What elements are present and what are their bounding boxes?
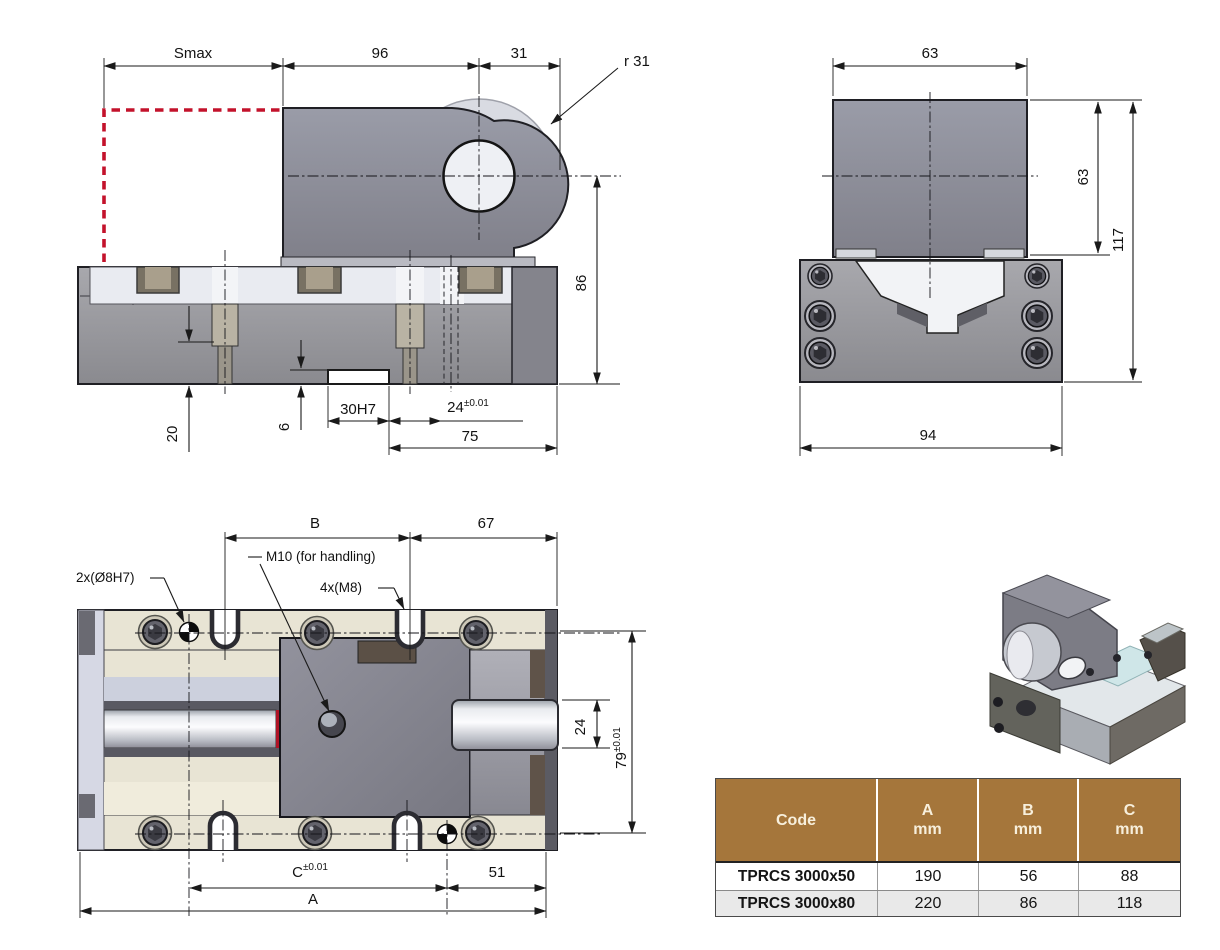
- jaw-plate-strip: [281, 257, 535, 267]
- base-right-block: [512, 267, 557, 384]
- edge-tab: [79, 794, 95, 818]
- dim-r31: r 31: [624, 53, 650, 70]
- cell-code: TPRCS 3000x80: [716, 891, 878, 916]
- dim-96: 96: [372, 45, 389, 62]
- socket-screw-icon: [808, 264, 832, 288]
- screw-socket: [459, 267, 502, 293]
- clamp-head-body: [283, 108, 568, 258]
- spec-table: Code Amm Bmm Cmm TPRCS 3000x50 190 56 88…: [715, 778, 1181, 917]
- side-view: 63 63 117 94: [800, 45, 1142, 456]
- dim-30h7: 30H7: [340, 401, 376, 418]
- cell-b: 56: [979, 863, 1079, 890]
- col-header-a: Amm: [878, 779, 979, 861]
- stroke-open-position-outline: [104, 110, 283, 262]
- dim-94: 94: [920, 427, 937, 444]
- dim-63-top: 63: [922, 45, 939, 62]
- label-m8-holes: 4x(M8): [320, 580, 362, 595]
- socket-screw-icon: [805, 301, 835, 331]
- dim-75: 75: [462, 428, 479, 445]
- socket-screw-icon: [139, 616, 172, 649]
- cell-code: TPRCS 3000x50: [716, 863, 878, 890]
- label-m10-handling: M10 (for handling): [266, 549, 376, 564]
- drawing-page: { "drawing": { "front": { "smax": "Smax"…: [0, 0, 1220, 950]
- fixed-jaw-block: [280, 638, 470, 817]
- dim-51: 51: [489, 864, 506, 881]
- dim-smax: Smax: [174, 45, 213, 62]
- screw-socket: [298, 267, 341, 293]
- cell-a: 220: [878, 891, 979, 916]
- dim-24-front: 24±0.01: [447, 398, 489, 416]
- col-header-c: Cmm: [1079, 779, 1180, 861]
- cell-c: 88: [1079, 863, 1180, 890]
- jaw-band: [104, 677, 280, 701]
- carrier-brown-pad: [530, 650, 545, 698]
- col-header-code: Code: [716, 779, 878, 861]
- socket-screw-icon: [1022, 301, 1052, 331]
- col-header-b: Bmm: [979, 779, 1079, 861]
- lead-screw-cylinder: [104, 710, 276, 748]
- clamp-bar: [452, 700, 558, 750]
- cell-b: 86: [979, 891, 1079, 916]
- dim-63-right: 63: [1075, 169, 1092, 186]
- table-row: TPRCS 3000x80 220 86 118: [716, 890, 1180, 916]
- jaw-band-dark: [104, 748, 280, 757]
- jaw-band-light: [104, 782, 280, 815]
- spec-table-header: Code Amm Bmm Cmm: [716, 779, 1180, 863]
- cell-a: 190: [878, 863, 979, 890]
- label-dowel-holes: 2x(Ø8H7): [76, 570, 135, 585]
- screw-socket: [137, 267, 179, 293]
- jaw-step: [836, 249, 876, 258]
- dim-31: 31: [511, 45, 528, 62]
- carrier-brown-pad: [530, 755, 545, 815]
- dim-a: A: [308, 891, 318, 908]
- keyway-slot-30h7: [328, 370, 389, 384]
- dim-6: 6: [276, 423, 293, 431]
- edge-tab: [79, 611, 95, 655]
- product-3d-thumbnail: [990, 575, 1185, 764]
- hole-highlight: [321, 713, 337, 727]
- top-view: B 67 2x(Ø8H7) M10 (for handling) 4x(M8) …: [76, 515, 646, 918]
- jaw-band-dark: [104, 701, 280, 710]
- socket-screw-icon: [1022, 338, 1052, 368]
- dim-24-top: 24: [572, 719, 589, 736]
- socket-screw-icon: [1025, 264, 1049, 288]
- cell-c: 118: [1079, 891, 1180, 916]
- dim-c: C±0.01: [292, 862, 328, 881]
- socket-screw-icon: [805, 338, 835, 368]
- socket-screw-icon: [299, 817, 332, 850]
- jaw-step: [984, 249, 1024, 258]
- dim-117: 117: [1110, 228, 1127, 252]
- socket-screw-icon: [139, 817, 172, 850]
- dim-86: 86: [573, 275, 590, 292]
- front-view: Smax 96 31 r 31 86 20 6 30H7 24±0.01 75: [78, 45, 650, 455]
- dim-20: 20: [164, 426, 181, 443]
- socket-screw-icon: [462, 817, 495, 850]
- table-row: TPRCS 3000x50 190 56 88: [716, 863, 1180, 890]
- dim-79: 79±0.01: [612, 727, 630, 769]
- dim-b: B: [310, 515, 320, 532]
- dim-67: 67: [478, 515, 495, 532]
